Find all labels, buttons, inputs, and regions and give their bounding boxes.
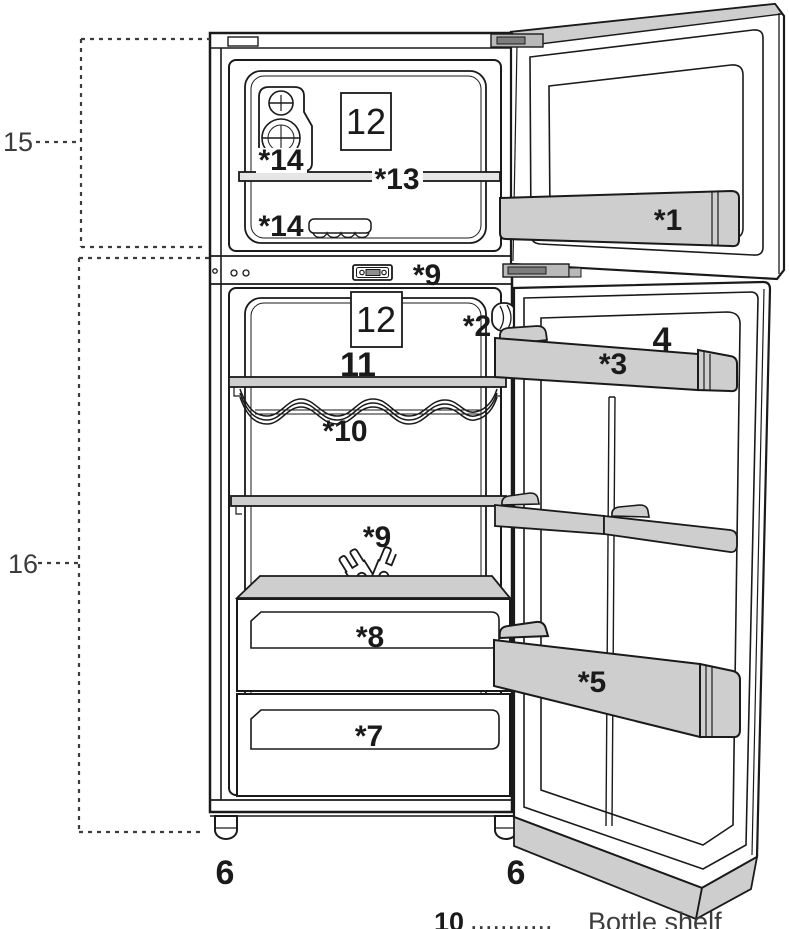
glass-shelf-lower — [231, 496, 506, 506]
screw-hole — [231, 270, 237, 276]
screw-hole — [213, 269, 217, 273]
label-freezer-door-shelf: *1 — [654, 204, 682, 237]
screw-hole — [243, 270, 249, 276]
top-hinge-cover — [228, 37, 258, 46]
label-drawer-upper: *8 — [356, 621, 384, 654]
label-foot-right: 6 — [507, 854, 526, 892]
label-foot-left: 6 — [216, 854, 235, 892]
freezer-door: *1 — [491, 4, 784, 279]
label-fridge-card: 12 — [356, 299, 396, 340]
fridge-diagram: *14 *13 *14 12 *9 — [0, 0, 789, 929]
label-lamp: *2 — [463, 310, 491, 343]
freezer-door-shelf: *1 — [500, 191, 739, 246]
legend-leader: ........... — [470, 905, 553, 929]
label-door-shelf-top: *3 — [599, 348, 627, 381]
label-freezer-shelf: *13 — [374, 163, 419, 196]
label-measure-lower: 16 — [8, 549, 38, 579]
crisper-cover — [237, 576, 510, 598]
legend-number: 10 — [434, 907, 464, 929]
label-bottle-shelf: *10 — [322, 415, 367, 448]
label-ice-tray: *14 — [258, 210, 303, 243]
legend-label: Bottle shelf — [588, 907, 722, 929]
label-door-shelf-top-no: 4 — [653, 321, 672, 359]
drawer-lower: *7 — [237, 694, 510, 796]
label-measure-upper: 15 — [3, 127, 33, 157]
label-ice-maker: *14 — [258, 144, 303, 177]
glass-shelf-upper — [229, 377, 506, 387]
fridge-diagram-page: *14 *13 *14 12 *9 — [0, 0, 789, 929]
label-drawer-lower: *7 — [355, 720, 383, 753]
freezer-door-top-hinge-icon — [491, 34, 543, 47]
label-freezer-card: 12 — [346, 101, 386, 142]
fridge-door: *3 4 *5 — [494, 282, 770, 919]
foot-left-icon — [215, 816, 237, 839]
control-panel-icon — [353, 265, 392, 280]
label-door-shelf-bottom: *5 — [578, 666, 606, 699]
freezer-door-bottom-hinge-icon — [503, 264, 581, 277]
drawer-upper: *8 — [237, 599, 510, 691]
